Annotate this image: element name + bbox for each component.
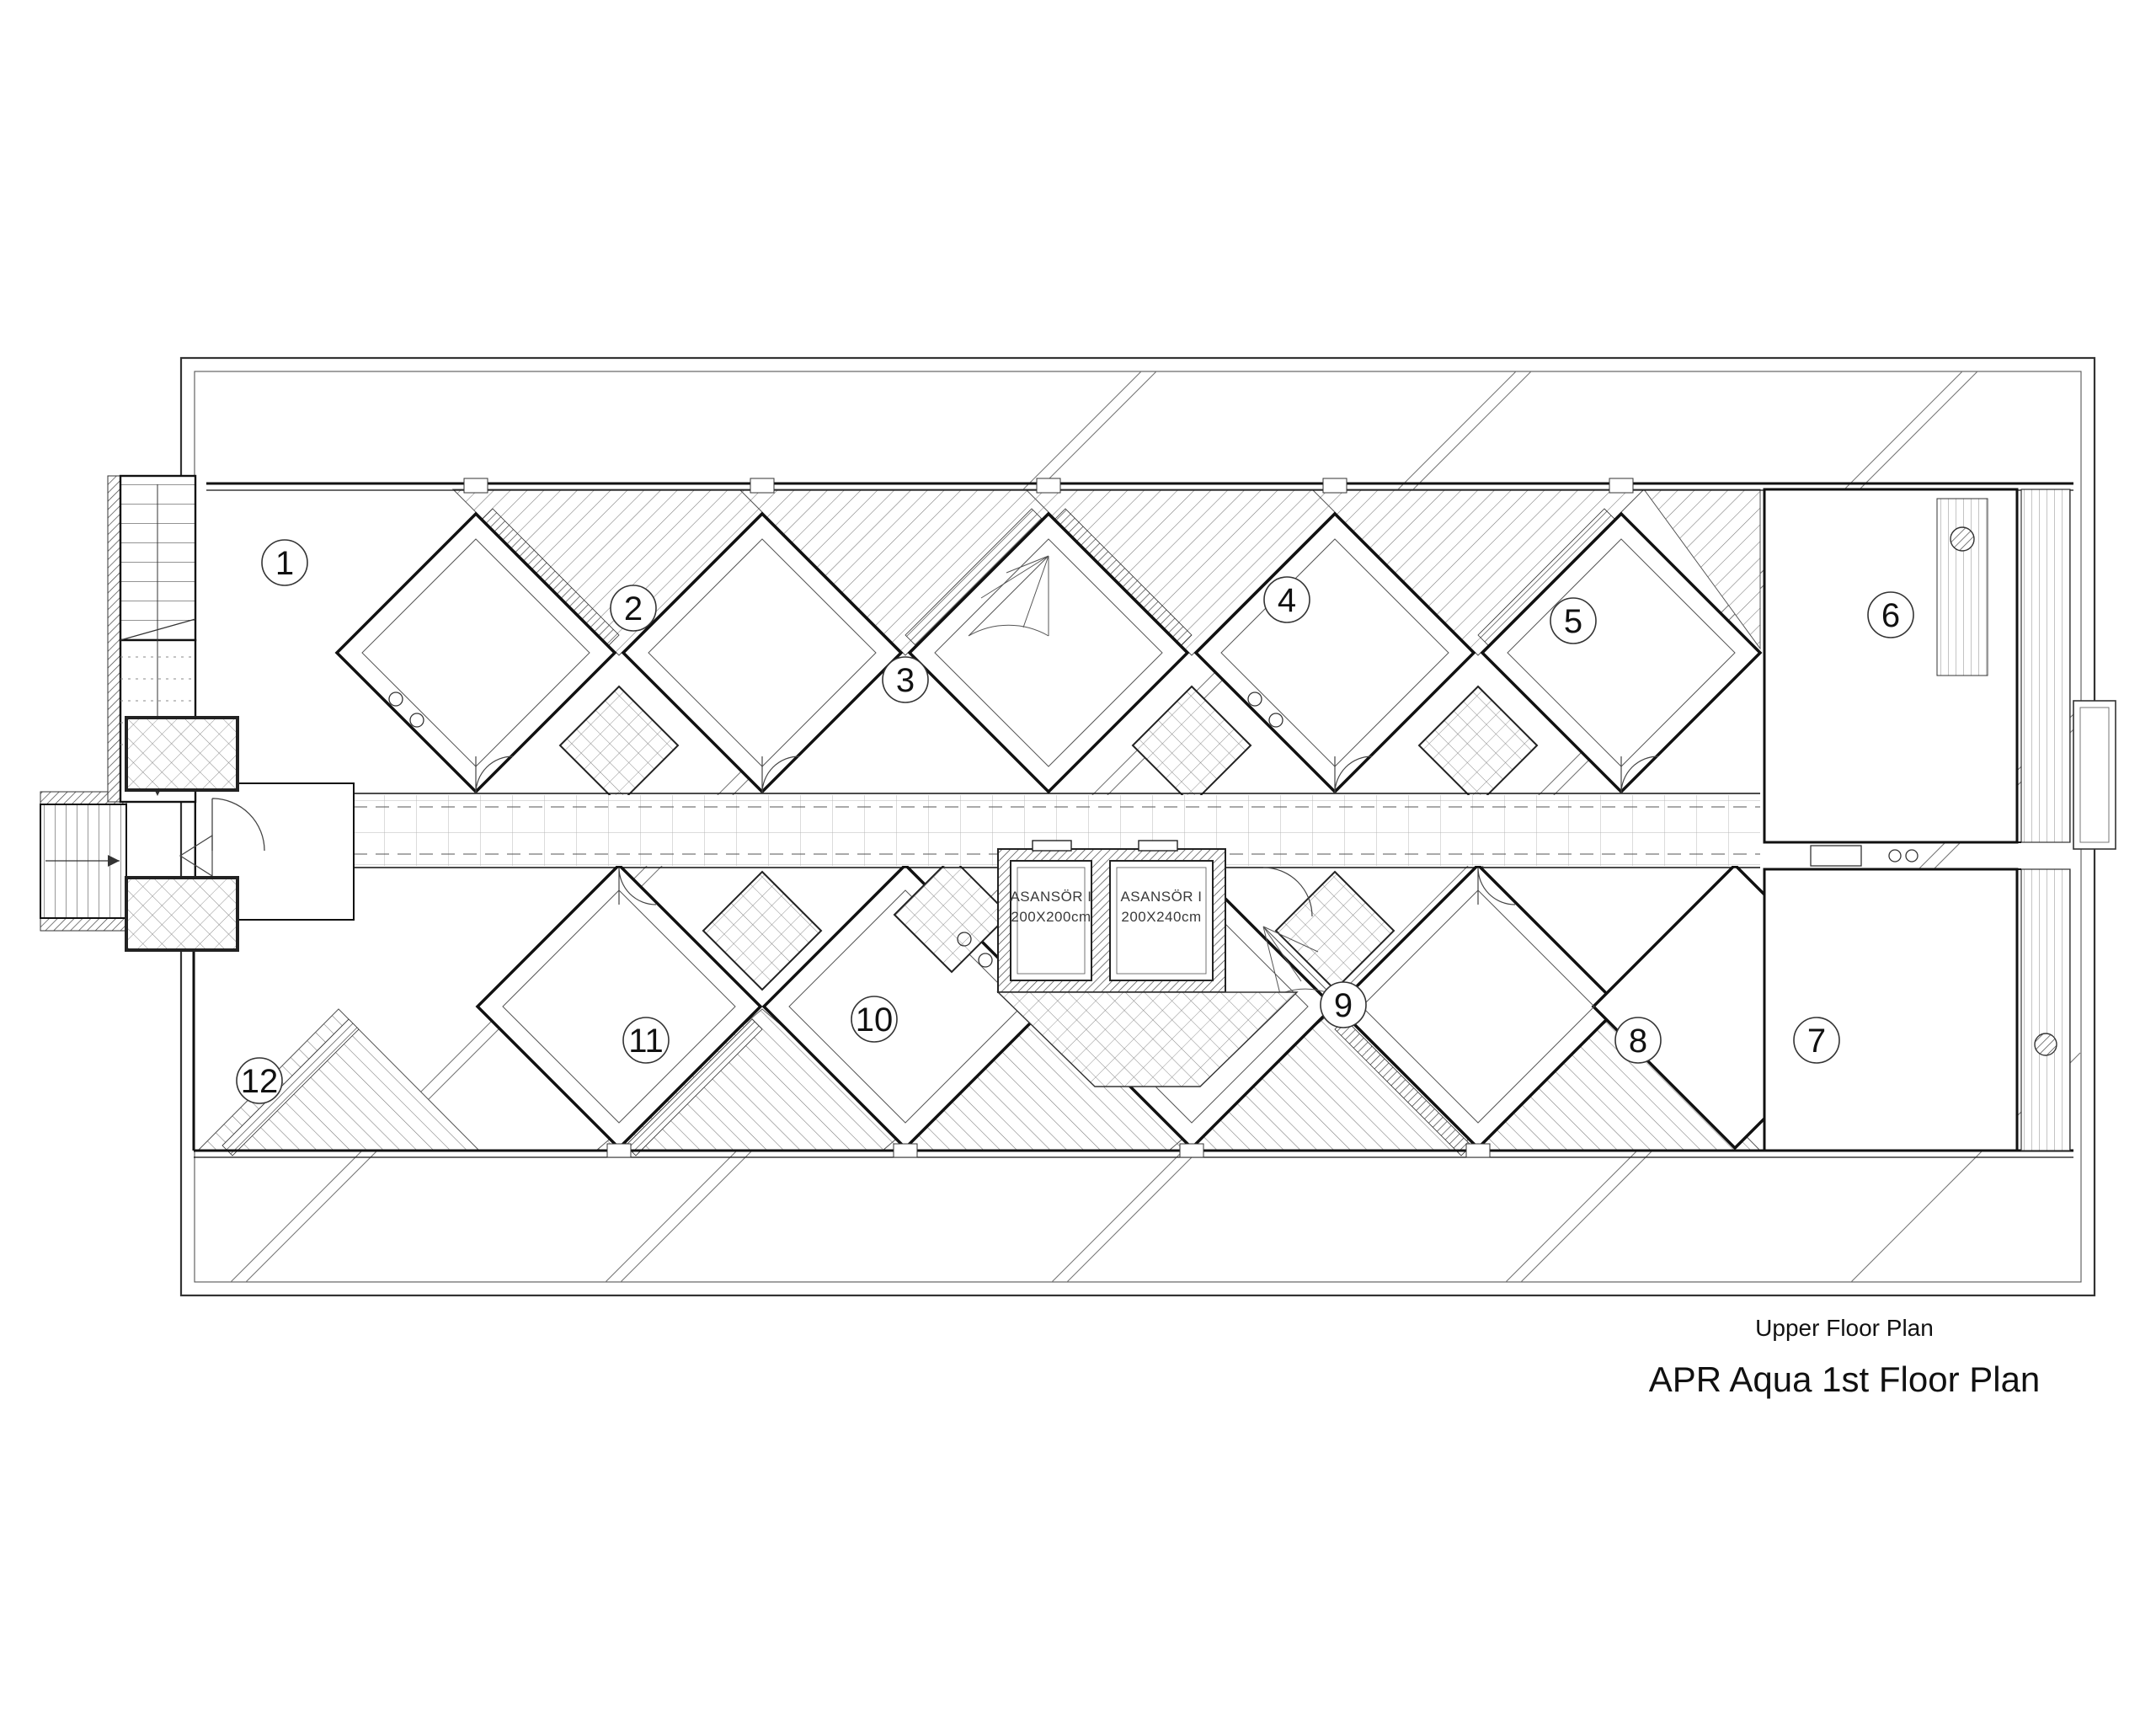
title-block: Upper Floor Plan APR Aqua 1st Floor Plan bbox=[1649, 1315, 2041, 1399]
drawing-sheet: ASANSÖR I200X200cmASANSÖR I200X240cm 123… bbox=[0, 0, 2156, 1725]
unit-badge-number: 6 bbox=[1881, 597, 1900, 634]
elevator-door-1 bbox=[1033, 841, 1071, 851]
unit-badge: 5 bbox=[1550, 598, 1596, 644]
unit-badge: 12 bbox=[237, 1058, 282, 1103]
unit-badge-number: 10 bbox=[856, 1001, 894, 1039]
unit-badge: 9 bbox=[1321, 982, 1366, 1028]
unit-badge-number: 4 bbox=[1278, 582, 1296, 619]
unit-badge: 6 bbox=[1868, 592, 1913, 638]
unit-badge: 8 bbox=[1615, 1017, 1661, 1063]
unit-badge-number: 2 bbox=[624, 590, 643, 628]
floor-plan-drawing: ASANSÖR I200X200cmASANSÖR I200X240cm 123… bbox=[0, 0, 2156, 1725]
unit-badge-number: 11 bbox=[628, 1023, 664, 1060]
elevator-name-label: ASANSÖR I bbox=[1010, 889, 1091, 905]
elevator-size-label: 200X200cm bbox=[1011, 909, 1091, 925]
unit-badge: 11 bbox=[623, 1017, 669, 1063]
unit-badge-number: 8 bbox=[1629, 1023, 1647, 1060]
unit-badge-number: 9 bbox=[1334, 987, 1353, 1024]
elevator-size-label: 200X240cm bbox=[1121, 909, 1201, 925]
elevator-door-2 bbox=[1139, 841, 1177, 851]
unit-badge-number: 3 bbox=[896, 662, 915, 699]
unit-badge-number: 7 bbox=[1807, 1023, 1826, 1060]
unit-badge: 7 bbox=[1794, 1017, 1839, 1063]
unit-badge: 10 bbox=[851, 996, 897, 1042]
unit-badge-number: 1 bbox=[275, 545, 294, 582]
unit-badge: 2 bbox=[611, 585, 656, 631]
elevator-name-label: ASANSÖR I bbox=[1120, 889, 1202, 905]
entry-stair bbox=[40, 792, 126, 931]
floor-plan-subtitle: Upper Floor Plan bbox=[1755, 1315, 1934, 1341]
unit-badge-number: 12 bbox=[241, 1063, 279, 1100]
unit-badge: 4 bbox=[1264, 577, 1310, 622]
floor-plan-title: APR Aqua 1st Floor Plan bbox=[1649, 1359, 2041, 1399]
unit-badge-number: 5 bbox=[1564, 603, 1582, 640]
unit-badge: 1 bbox=[262, 540, 307, 585]
unit-badge: 3 bbox=[883, 657, 928, 702]
